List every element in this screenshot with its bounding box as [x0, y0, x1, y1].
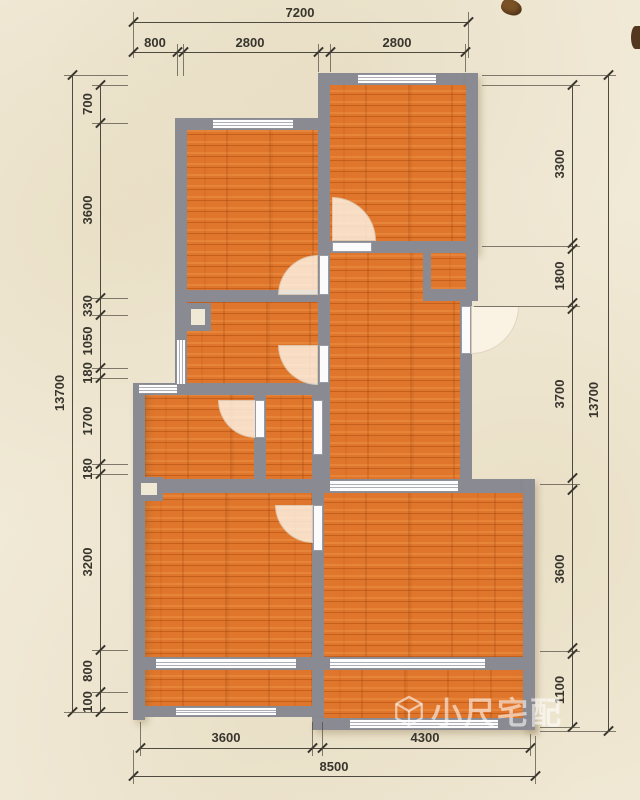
dim-extension — [468, 12, 469, 58]
dim-line-right-total — [608, 75, 609, 731]
watermark: 小尺宅配 — [392, 688, 563, 733]
dim-extension — [92, 712, 128, 713]
dim-label-top-seg-1: 2800 — [218, 36, 282, 50]
dim-line-bottom-segments — [140, 748, 530, 749]
dim-extension — [177, 44, 178, 76]
dim-extension — [535, 736, 536, 784]
dim-label-left-seg-0: 700 — [81, 74, 95, 134]
dim-extension — [64, 75, 128, 76]
dim-line-bottom-total — [133, 776, 535, 777]
edge-decoration — [631, 26, 640, 49]
dimension-layer: 7200 800 2800 2800 13700 700 3600 330 10… — [0, 0, 640, 800]
dim-extension — [92, 123, 128, 124]
dim-line-right-segments — [572, 85, 573, 728]
dim-extension — [92, 85, 128, 86]
dim-label-left-total: 13700 — [53, 363, 67, 423]
dim-extension — [92, 378, 128, 379]
dim-label-left-seg-7: 3200 — [81, 532, 95, 592]
dim-extension — [540, 484, 580, 485]
dim-label-right-seg-2: 3700 — [553, 364, 567, 424]
dim-line-left-segments — [100, 85, 101, 712]
dim-extension — [183, 44, 184, 76]
dim-extension — [92, 368, 128, 369]
dim-label-left-seg-9: 100 — [81, 672, 95, 732]
dim-line-left-total — [72, 75, 73, 712]
dim-label-bottom-seg-1: 4300 — [395, 731, 455, 745]
dim-extension — [133, 750, 134, 784]
watermark-text: 小尺宅配 — [431, 688, 563, 733]
dim-extension — [330, 44, 331, 72]
dim-extension — [482, 85, 580, 86]
dim-label-left-seg-6: 180 — [81, 439, 95, 499]
dim-label-top-total: 7200 — [270, 6, 330, 20]
dim-label-left-seg-1: 3600 — [81, 180, 95, 240]
dim-label-right-seg-3: 3600 — [553, 539, 567, 599]
dim-extension — [92, 464, 128, 465]
dim-label-top-seg-2: 2800 — [365, 36, 429, 50]
dim-label-bottom-seg-0: 3600 — [196, 731, 256, 745]
dim-extension — [540, 651, 580, 652]
watermark-logo-icon — [392, 694, 426, 728]
dim-extension — [530, 734, 531, 756]
dim-extension — [465, 44, 466, 72]
dim-extension — [92, 315, 128, 316]
dim-extension — [140, 722, 141, 756]
dim-extension — [312, 722, 313, 756]
dim-extension — [474, 306, 580, 307]
dim-extension — [92, 474, 128, 475]
dim-extension — [92, 298, 128, 299]
dim-extension — [482, 75, 616, 76]
dim-line-top-total — [133, 22, 468, 23]
dim-label-right-seg-0: 3300 — [553, 134, 567, 194]
dim-extension — [92, 650, 128, 651]
dim-label-bottom-total: 8500 — [304, 760, 364, 774]
dim-label-right-seg-1: 1800 — [553, 246, 567, 306]
dim-extension — [318, 44, 319, 72]
dim-label-right-total: 13700 — [587, 370, 601, 430]
dim-extension — [92, 692, 128, 693]
dim-extension — [322, 722, 323, 756]
